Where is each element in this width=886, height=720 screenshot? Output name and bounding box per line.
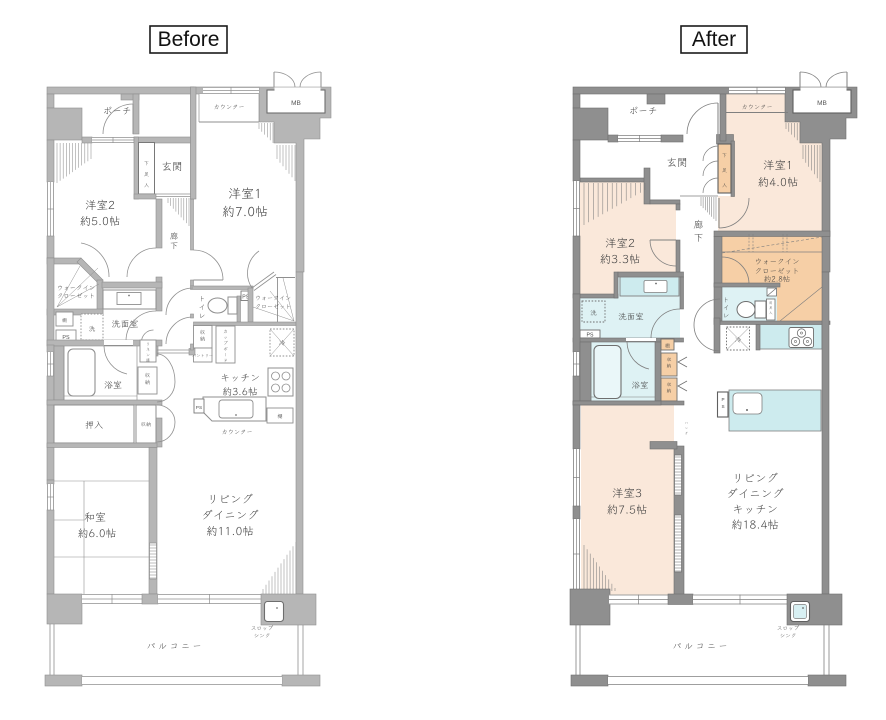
svg-text:Before: Before: [158, 28, 220, 51]
svg-text:PS: PS: [587, 332, 594, 338]
svg-text:PS: PS: [196, 405, 202, 411]
svg-text:After: After: [692, 28, 736, 51]
svg-text:MB: MB: [291, 100, 301, 107]
svg-text:S: S: [721, 404, 724, 409]
svg-text:MB: MB: [817, 100, 827, 107]
svg-text:P: P: [721, 397, 724, 402]
